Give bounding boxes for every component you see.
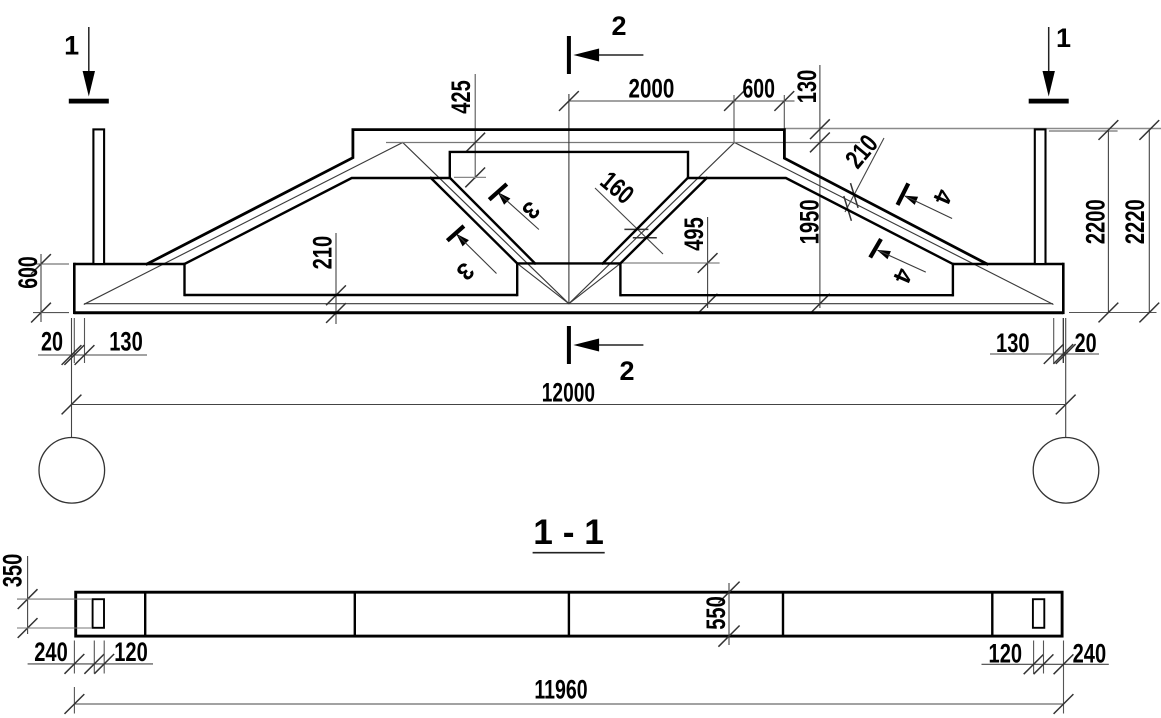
svg-text:600: 600	[742, 74, 775, 104]
svg-text:210: 210	[308, 236, 338, 270]
svg-text:350: 350	[0, 554, 28, 588]
svg-text:1950: 1950	[795, 199, 825, 244]
svg-text:600: 600	[13, 256, 43, 289]
svg-text:130: 130	[109, 327, 143, 357]
svg-text:11960: 11960	[534, 675, 587, 705]
svg-text:20: 20	[1075, 328, 1097, 358]
svg-text:120: 120	[989, 638, 1023, 668]
svg-text:130: 130	[996, 328, 1030, 358]
svg-text:2: 2	[619, 356, 634, 386]
svg-text:2000: 2000	[629, 74, 675, 104]
svg-text:120: 120	[114, 637, 148, 667]
svg-text:1: 1	[64, 31, 79, 61]
svg-text:2220: 2220	[1120, 199, 1150, 244]
svg-text:1 - 1: 1 - 1	[533, 513, 604, 552]
svg-text:425: 425	[446, 80, 476, 114]
svg-text:130: 130	[792, 70, 822, 104]
svg-text:1: 1	[1056, 23, 1071, 53]
svg-text:2: 2	[611, 11, 626, 41]
svg-text:240: 240	[34, 637, 68, 667]
svg-text:2200: 2200	[1080, 199, 1110, 244]
svg-text:12000: 12000	[542, 378, 595, 408]
svg-text:550: 550	[701, 596, 731, 630]
svg-text:495: 495	[679, 217, 709, 251]
svg-text:20: 20	[41, 327, 63, 357]
svg-text:240: 240	[1073, 638, 1107, 668]
